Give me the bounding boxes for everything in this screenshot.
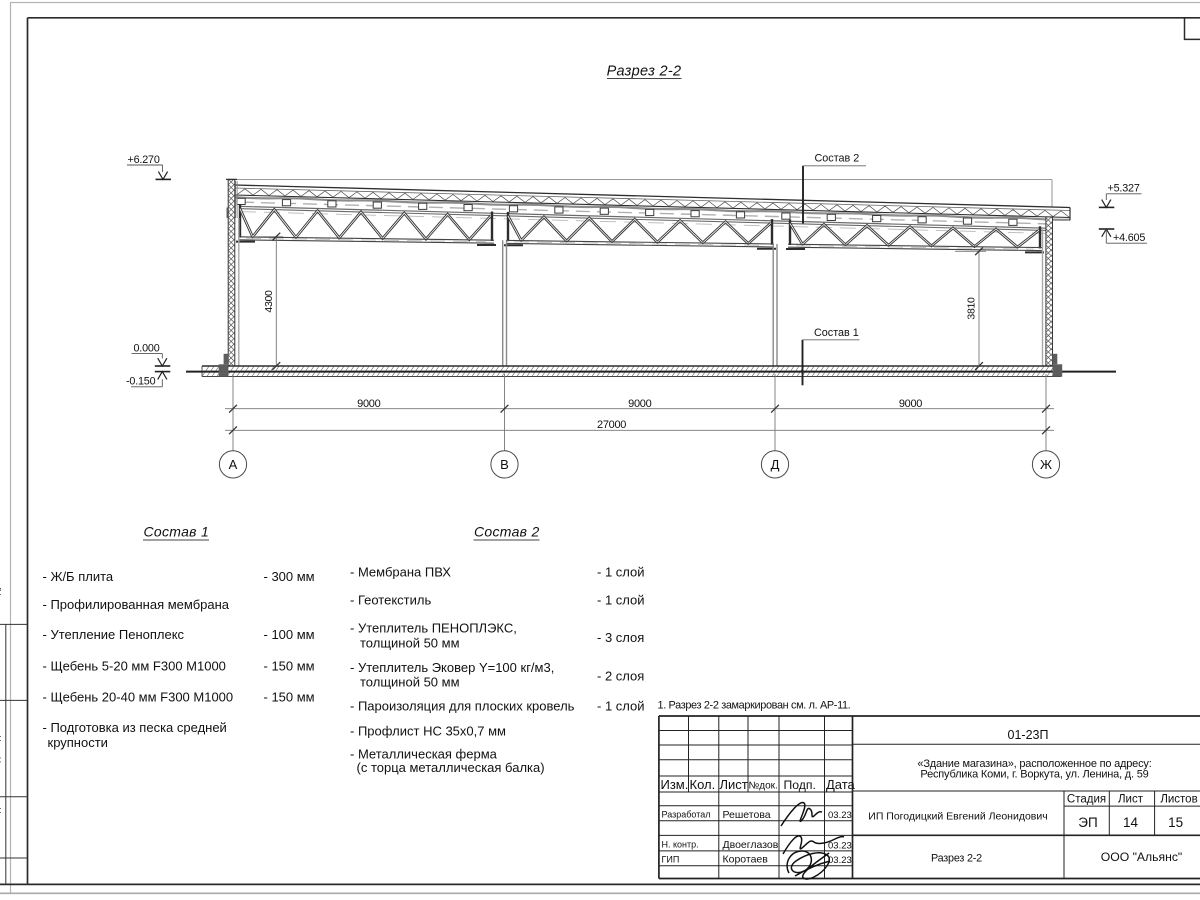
svg-text:03.23: 03.23 <box>828 840 852 851</box>
svg-text:14: 14 <box>1123 815 1139 830</box>
svg-text:Стадия: Стадия <box>1067 794 1106 806</box>
svg-text:Состав 1: Состав 1 <box>814 327 859 339</box>
svg-text:крупности: крупности <box>48 735 108 750</box>
svg-text:Кол.: Кол. <box>690 777 716 792</box>
svg-text:01-23П: 01-23П <box>1008 728 1049 742</box>
svg-text:03.23: 03.23 <box>828 855 852 866</box>
svg-text:- Утеплитель ПЕНОПЛЭКС,: - Утеплитель ПЕНОПЛЭКС, <box>350 621 517 636</box>
svg-text:1. Разрез 2-2 замаркирован см.: 1. Разрез 2-2 замаркирован см. л. АР-11. <box>658 699 851 711</box>
svg-text:ЭП: ЭП <box>1078 815 1097 830</box>
svg-text:Взам. инв. №: Взам. инв. № <box>0 636 2 689</box>
svg-text:15: 15 <box>1168 815 1183 830</box>
svg-text:Решетова: Решетова <box>723 809 771 821</box>
svg-text:9000: 9000 <box>899 398 922 410</box>
svg-text:толщиной 50 мм: толщиной 50 мм <box>360 635 460 650</box>
svg-text:Состав 2: Состав 2 <box>815 153 860 165</box>
svg-text:Двоеглазов: Двоеглазов <box>723 839 779 851</box>
svg-text:3810: 3810 <box>966 297 978 320</box>
svg-text:Д: Д <box>771 457 780 472</box>
svg-text:27000: 27000 <box>597 419 626 431</box>
svg-text:- Утепление Пеноплекс: - Утепление Пеноплекс <box>43 627 185 642</box>
svg-text:- 3 слоя: - 3 слоя <box>597 630 644 645</box>
svg-text:ГИП: ГИП <box>662 854 680 864</box>
svg-text:Разрез 2-2: Разрез 2-2 <box>931 853 982 865</box>
svg-text:- 1 слой: - 1 слой <box>597 699 645 714</box>
svg-text:- Профилированная мембрана: - Профилированная мембрана <box>43 597 230 612</box>
svg-text:4300: 4300 <box>263 290 275 313</box>
svg-text:Состав 2: Состав 2 <box>474 524 540 540</box>
svg-text:Лист: Лист <box>720 777 748 792</box>
svg-text:-0.150: -0.150 <box>126 376 156 388</box>
svg-text:Подп.: Подп. <box>784 778 816 792</box>
svg-text:9000: 9000 <box>628 398 651 410</box>
svg-text:- 150 мм: - 150 мм <box>264 690 315 705</box>
svg-text:Разрез 2-2: Разрез 2-2 <box>607 64 682 80</box>
svg-text:- Пароизоляция для плоских кро: - Пароизоляция для плоских кровель <box>350 699 575 714</box>
svg-text:- Подготовка из песка средней: - Подготовка из песка средней <box>43 720 227 735</box>
svg-text:- Утеплитель Эковер Y=100 кг/м: - Утеплитель Эковер Y=100 кг/м3, <box>350 660 554 675</box>
svg-text:+4.605: +4.605 <box>1113 232 1145 244</box>
svg-text:Дата: Дата <box>826 777 856 792</box>
svg-text:+6.270: +6.270 <box>128 154 160 166</box>
svg-text:- Профлист НС 35х0,7 мм: - Профлист НС 35х0,7 мм <box>350 723 506 738</box>
svg-text:А: А <box>229 457 238 472</box>
svg-text:- 100 мм: - 100 мм <box>264 627 315 642</box>
svg-text:- Геотекстиль: - Геотекстиль <box>350 593 431 608</box>
svg-text:9000: 9000 <box>357 398 380 410</box>
svg-text:Коротаев: Коротаев <box>723 854 769 866</box>
svg-text:ООО "Альянс": ООО "Альянс" <box>1101 850 1183 864</box>
svg-text:+5.327: +5.327 <box>1108 182 1140 194</box>
svg-text:Подп. и дата: Подп. и дата <box>0 723 2 773</box>
svg-text:Состав 1: Состав 1 <box>144 524 210 540</box>
svg-text:- Мембрана ПВХ: - Мембрана ПВХ <box>350 565 451 580</box>
svg-text:Н. контр.: Н. контр. <box>662 840 699 850</box>
svg-text:- 2 слоя: - 2 слоя <box>597 668 644 683</box>
svg-text:Инв. № дубл.: Инв. № дубл. <box>0 574 2 627</box>
svg-text:- Щебень 5-20 мм F300 М1000: - Щебень 5-20 мм F300 М1000 <box>43 658 226 673</box>
svg-text:0.000: 0.000 <box>134 343 160 355</box>
svg-text:Инв. № подл.: Инв. № подл. <box>0 801 2 854</box>
svg-text:- 300 мм: - 300 мм <box>264 569 315 584</box>
svg-text:03.23: 03.23 <box>828 810 852 821</box>
svg-text:Ж: Ж <box>1040 457 1052 472</box>
svg-text:- Ж/Б плита: - Ж/Б плита <box>43 569 114 584</box>
svg-text:№док.: №док. <box>749 781 778 792</box>
svg-text:толщиной 50 мм: толщиной 50 мм <box>360 675 460 690</box>
svg-text:Разработал: Разработал <box>662 810 711 820</box>
svg-text:ИП Погодицкий Евгений Леонидов: ИП Погодицкий Евгений Леонидович <box>868 811 1047 823</box>
svg-text:Лист: Лист <box>1118 794 1144 806</box>
svg-text:В: В <box>500 457 509 472</box>
svg-text:- 150 мм: - 150 мм <box>264 658 315 673</box>
svg-text:Республика Коми, г. Воркута, у: Республика Коми, г. Воркута, ул. Ленина,… <box>920 769 1148 781</box>
svg-text:Изм.: Изм. <box>661 777 689 792</box>
svg-text:- 1 слой: - 1 слой <box>597 593 645 608</box>
svg-text:- Металлическая ферма: - Металлическая ферма <box>350 746 498 761</box>
svg-text:- 1 слой: - 1 слой <box>597 565 645 580</box>
svg-text:(с торца металлическая балка): (с торца металлическая балка) <box>357 760 545 775</box>
svg-text:- Щебень 20-40 мм F300 М1000: - Щебень 20-40 мм F300 М1000 <box>43 690 234 705</box>
svg-text:Листов: Листов <box>1160 794 1197 806</box>
